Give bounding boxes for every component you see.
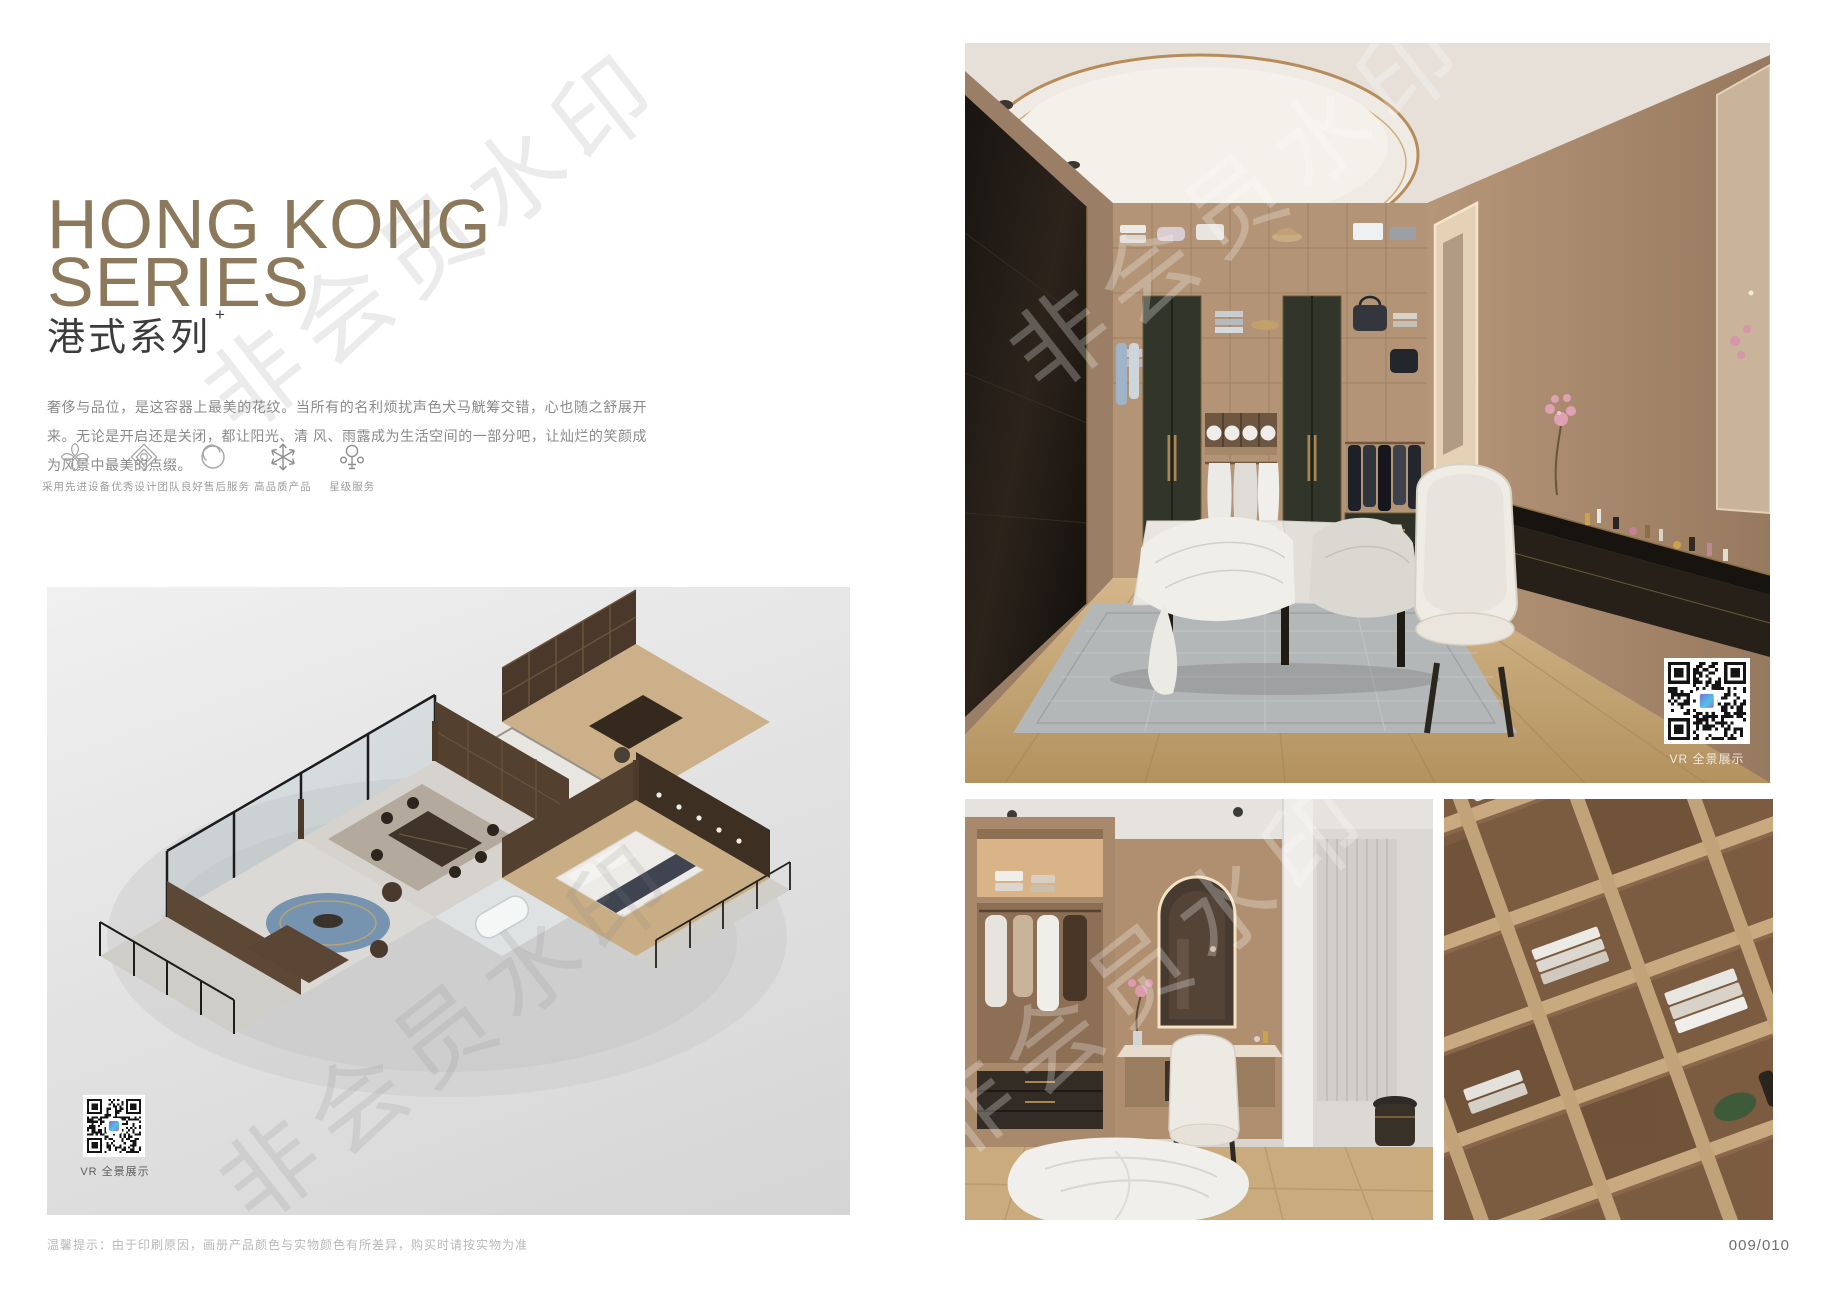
- feature-design-team: 优秀设计团队: [111, 441, 176, 494]
- photo-dressing-table: [965, 799, 1433, 1220]
- snowflake-icon: [267, 441, 299, 473]
- vr-panorama-label: VR 全景展示: [80, 1163, 150, 1179]
- feature-star-service: 星级服务: [320, 441, 385, 494]
- isometric-floorplan: [47, 587, 850, 1215]
- wardrobe-shelves-illustration: [1444, 799, 1773, 1220]
- ornament-icon: [128, 441, 160, 473]
- floorplan-panel: VR 全景展示: [47, 587, 850, 1215]
- footer-disclaimer: 温馨提示：由于印刷原因，画册产品颜色与实物颜色有所差异，购买时请按实物为准: [47, 1236, 528, 1253]
- qr-code-walkin-closet: [1664, 658, 1750, 744]
- feature-label: 高品质产品: [250, 479, 315, 494]
- key-star-icon: [336, 441, 368, 473]
- pinwheel-icon: [59, 441, 91, 473]
- qr-center-logo-icon: [106, 1118, 122, 1134]
- page-title: HONG KONG SERIES: [47, 195, 492, 311]
- photo-wardrobe-shelves: [1444, 799, 1773, 1220]
- feature-quality-product: 高品质产品: [250, 441, 315, 494]
- dressing-table-illustration: [965, 799, 1433, 1220]
- feature-icon-row: 采用先进设备 优秀设计团队 良好售后服务: [42, 441, 385, 494]
- plus-mark: +: [215, 305, 228, 324]
- series-subtitle: 港式系列+: [47, 306, 224, 361]
- feature-advanced-equipment: 采用先进设备: [42, 441, 107, 494]
- feature-label: 采用先进设备: [42, 479, 107, 494]
- qr-code-floorplan: [83, 1095, 145, 1157]
- catalog-page: HONG KONG SERIES 港式系列+ 奢侈与品位，是这容器上最美的花纹。…: [0, 0, 1836, 1307]
- feature-label: 优秀设计团队: [111, 479, 176, 494]
- feature-after-sales: 良好售后服务: [181, 441, 246, 494]
- page-number: 009/010: [1660, 1237, 1790, 1254]
- feature-label: 星级服务: [320, 479, 385, 494]
- qr-center-logo-icon: [1696, 690, 1718, 712]
- vr-panorama-label: VR 全景展示: [1655, 750, 1759, 767]
- ring-icon: [197, 441, 229, 473]
- walkin-closet-illustration: [965, 43, 1770, 783]
- feature-label: 良好售后服务: [181, 479, 246, 494]
- series-subtitle-text: 港式系列: [47, 317, 211, 359]
- photo-walkin-closet: VR 全景展示: [965, 43, 1770, 783]
